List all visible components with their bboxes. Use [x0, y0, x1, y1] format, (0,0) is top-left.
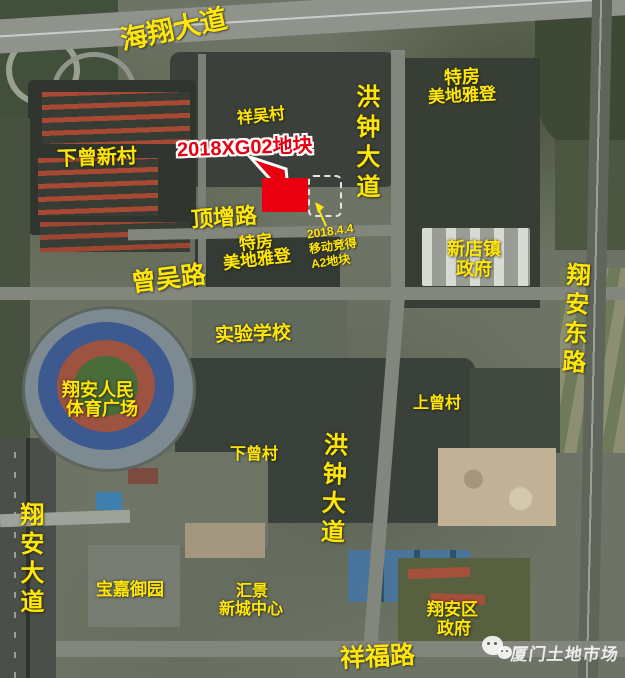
- gov-label-xiangan-district-line1: 翔安区: [427, 601, 478, 619]
- satellite-map: 海翔大道 祥吴村 特房 美地雅登 洪钟大道 2018XG02地块 顶增路 特房 …: [0, 0, 625, 678]
- village-lane-vertical: [198, 54, 206, 289]
- road-label-hongzhong-top: 洪钟大道: [352, 84, 378, 204]
- hongzhong-avenue-road-top: [391, 50, 405, 295]
- estate-label-baojia: 宝嘉御园: [96, 581, 164, 599]
- plot-2018xg02-shape: [262, 178, 308, 212]
- road-label-xiangan-east: 翔安东路: [557, 261, 589, 378]
- village-label-xiazeng-new: 下曾新村: [57, 147, 138, 171]
- estate-label-huijing-line2: 新城中心: [219, 601, 283, 618]
- village-label-shangzeng: 上曾村: [413, 395, 461, 412]
- wechat-icon: [482, 636, 512, 664]
- gov-label-xiangan-district-line2: 政府: [437, 620, 471, 638]
- construction-site-tan: [438, 448, 556, 526]
- watermark-text: 厦门土地市场: [509, 640, 621, 665]
- parcel-a2-dashed-outline: [308, 175, 342, 217]
- road-label-dingzeng: 顶增路: [190, 204, 258, 232]
- school-label-shiyan: 实验学校: [215, 324, 292, 347]
- gov-label-xindian-line2: 政府: [456, 260, 492, 279]
- swimming-pool: [96, 492, 122, 510]
- estate-label-huijing-line1: 汇景: [236, 583, 268, 600]
- dirt-patch-center-bottom: [185, 523, 265, 558]
- village-label-xiazeng: 下曾村: [230, 446, 278, 463]
- annotation-a2-parcel: 2018.4.4 移动竞得 A2地块: [306, 221, 360, 272]
- zengwu-road-strip: [0, 287, 625, 300]
- tennis-court: [128, 468, 158, 484]
- red-roof-rows-1: [42, 92, 190, 144]
- stadium-label-line2: 体育广场: [66, 400, 138, 419]
- estate-label-tefang-top-line2: 美地雅登: [428, 85, 497, 107]
- gov-label-xindian-line1: 新店镇: [447, 240, 501, 259]
- stadium-label-line1: 翔安人民: [62, 381, 134, 400]
- road-label-xiangfu: 祥福路: [339, 642, 415, 673]
- road-label-hongzhong-bottom: 洪钟大道: [316, 432, 346, 549]
- road-label-xiangan-avenue: 翔安大道: [16, 502, 42, 618]
